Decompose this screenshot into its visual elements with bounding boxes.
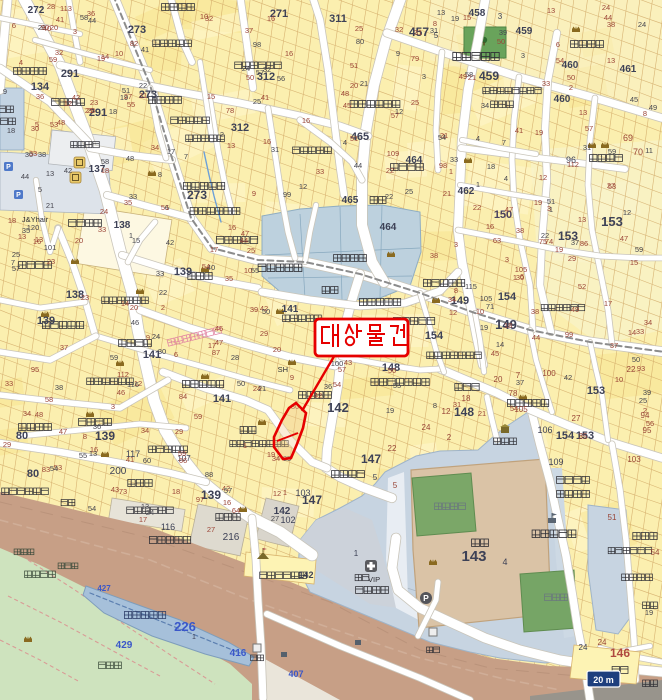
- svg-text:25: 25: [247, 246, 255, 255]
- svg-text:21: 21: [258, 384, 266, 393]
- svg-text:23: 23: [47, 257, 55, 266]
- svg-text:272: 272: [28, 5, 45, 16]
- svg-text:18: 18: [462, 394, 471, 403]
- svg-text:25: 25: [12, 250, 20, 259]
- svg-text:17: 17: [167, 147, 175, 156]
- svg-text:7: 7: [184, 152, 188, 161]
- svg-text:50: 50: [632, 355, 640, 364]
- svg-text:10: 10: [476, 307, 484, 316]
- svg-text:5: 5: [35, 120, 39, 129]
- svg-text:462: 462: [458, 186, 475, 197]
- svg-text:SH: SH: [278, 365, 288, 374]
- svg-text:24: 24: [152, 332, 160, 341]
- svg-text:50: 50: [497, 37, 505, 46]
- svg-text:19: 19: [451, 14, 459, 23]
- svg-text:1: 1: [549, 205, 553, 214]
- svg-text:1: 1: [449, 167, 453, 176]
- svg-text:41: 41: [261, 93, 269, 102]
- svg-text:116: 116: [161, 522, 175, 532]
- svg-text:103: 103: [295, 488, 310, 498]
- svg-text:98: 98: [253, 40, 261, 49]
- svg-text:3: 3: [73, 27, 77, 36]
- svg-text:37: 37: [60, 343, 68, 352]
- svg-text:95: 95: [31, 365, 39, 374]
- svg-text:12: 12: [449, 308, 457, 317]
- svg-text:22: 22: [627, 365, 636, 374]
- svg-text:15: 15: [463, 13, 471, 22]
- svg-text:36: 36: [324, 382, 332, 391]
- svg-text:50: 50: [237, 379, 245, 388]
- svg-text:19: 19: [386, 406, 394, 415]
- svg-text:8: 8: [83, 432, 87, 441]
- svg-text:60: 60: [143, 456, 151, 465]
- svg-text:22: 22: [388, 444, 397, 453]
- svg-text:115: 115: [465, 282, 477, 291]
- svg-text:4: 4: [504, 174, 508, 183]
- svg-text:2: 2: [220, 130, 224, 139]
- svg-text:41: 41: [515, 126, 523, 135]
- svg-text:109: 109: [387, 149, 400, 158]
- svg-text:18: 18: [504, 321, 512, 330]
- svg-text:90: 90: [41, 23, 49, 32]
- svg-text:34: 34: [481, 101, 489, 110]
- svg-text:460: 460: [562, 60, 579, 71]
- svg-text:154: 154: [556, 430, 575, 442]
- svg-text:59: 59: [608, 147, 616, 156]
- svg-text:13: 13: [547, 6, 555, 15]
- svg-text:47: 47: [215, 338, 223, 347]
- svg-text:153: 153: [601, 214, 623, 229]
- svg-text:1: 1: [354, 549, 359, 558]
- svg-text:461: 461: [620, 64, 637, 75]
- svg-text:226: 226: [174, 619, 196, 634]
- svg-text:2: 2: [161, 303, 165, 312]
- svg-text:87: 87: [212, 348, 220, 357]
- svg-text:22: 22: [473, 203, 481, 212]
- svg-text:20: 20: [75, 236, 83, 245]
- svg-text:56: 56: [646, 419, 654, 428]
- svg-text:56: 56: [277, 74, 285, 83]
- svg-text:24: 24: [146, 508, 154, 517]
- svg-text:64: 64: [232, 506, 240, 515]
- svg-text:54: 54: [510, 404, 518, 413]
- svg-text:48: 48: [57, 118, 65, 127]
- svg-text:5: 5: [373, 473, 378, 482]
- svg-text:273: 273: [187, 188, 207, 202]
- svg-text:12: 12: [273, 489, 281, 498]
- svg-text:36: 36: [36, 92, 44, 101]
- svg-text:34: 34: [151, 143, 159, 152]
- svg-text:39: 39: [499, 28, 507, 37]
- svg-text:139: 139: [37, 315, 55, 327]
- svg-text:51: 51: [350, 134, 358, 143]
- svg-text:459: 459: [516, 26, 533, 37]
- svg-text:34: 34: [448, 295, 456, 304]
- svg-text:37: 37: [245, 26, 253, 35]
- svg-text:33: 33: [542, 79, 550, 88]
- svg-text:19: 19: [534, 198, 542, 207]
- svg-text:22: 22: [385, 192, 393, 201]
- svg-text:142: 142: [298, 570, 313, 580]
- svg-text:22: 22: [159, 288, 167, 297]
- svg-text:49: 49: [571, 305, 579, 314]
- svg-text:37: 37: [516, 378, 524, 387]
- svg-text:47: 47: [241, 229, 249, 238]
- svg-text:33: 33: [450, 155, 458, 164]
- svg-text:31: 31: [139, 91, 147, 100]
- svg-text:19: 19: [480, 323, 488, 332]
- svg-text:139: 139: [95, 429, 115, 443]
- svg-text:25: 25: [411, 98, 419, 107]
- svg-text:16: 16: [285, 49, 293, 58]
- svg-text:63: 63: [493, 236, 501, 245]
- svg-text:141: 141: [282, 304, 299, 315]
- svg-text:20: 20: [494, 375, 503, 384]
- svg-text:13: 13: [46, 169, 54, 178]
- svg-text:18: 18: [172, 487, 180, 496]
- svg-text:18: 18: [487, 162, 495, 171]
- svg-text:55: 55: [393, 381, 401, 390]
- svg-text:39: 39: [250, 305, 258, 314]
- svg-text:13: 13: [89, 449, 97, 458]
- svg-text:2: 2: [447, 433, 452, 442]
- svg-text:19: 19: [535, 128, 543, 137]
- svg-text:44: 44: [532, 333, 540, 342]
- svg-text:12: 12: [539, 173, 547, 182]
- svg-text:460: 460: [554, 94, 571, 105]
- svg-text:51: 51: [608, 513, 617, 522]
- svg-text:33: 33: [129, 192, 137, 201]
- svg-text:71: 71: [486, 302, 494, 311]
- svg-text:113: 113: [60, 4, 72, 13]
- svg-text:46: 46: [215, 324, 223, 333]
- svg-text:141: 141: [213, 393, 231, 405]
- svg-text:37: 37: [610, 341, 618, 350]
- svg-text:153: 153: [587, 385, 605, 397]
- svg-text:1: 1: [513, 273, 517, 282]
- svg-text:21: 21: [46, 201, 54, 210]
- svg-text:139: 139: [174, 266, 192, 278]
- svg-text:20 m: 20 m: [593, 675, 614, 685]
- svg-text:154: 154: [498, 291, 517, 303]
- svg-text:86: 86: [580, 239, 588, 248]
- svg-text:12: 12: [623, 208, 631, 217]
- svg-text:54: 54: [651, 548, 660, 557]
- svg-text:41: 41: [56, 15, 64, 24]
- svg-text:54: 54: [333, 380, 341, 389]
- svg-text:24: 24: [422, 423, 431, 432]
- svg-text:36: 36: [93, 422, 101, 431]
- svg-text:88: 88: [205, 470, 213, 479]
- svg-text:465: 465: [342, 195, 359, 206]
- svg-text:8: 8: [433, 19, 437, 28]
- svg-text:3: 3: [454, 240, 458, 249]
- svg-text:P: P: [16, 192, 21, 199]
- svg-text:27: 27: [572, 414, 581, 423]
- svg-text:291: 291: [61, 68, 79, 80]
- svg-text:105: 105: [480, 294, 493, 303]
- svg-text:18: 18: [101, 166, 109, 175]
- svg-text:80: 80: [356, 37, 364, 46]
- svg-text:13: 13: [607, 56, 615, 65]
- svg-text:42: 42: [72, 93, 80, 102]
- svg-text:13: 13: [227, 141, 235, 150]
- svg-text:3: 3: [505, 255, 509, 264]
- svg-text:97: 97: [196, 495, 204, 504]
- svg-text:33: 33: [156, 269, 164, 278]
- svg-text:19: 19: [555, 245, 563, 254]
- svg-text:35: 35: [225, 274, 233, 283]
- svg-text:4: 4: [19, 58, 23, 67]
- svg-text:458: 458: [469, 8, 486, 19]
- svg-text:VIP: VIP: [368, 575, 380, 584]
- svg-text:50: 50: [567, 73, 575, 82]
- svg-text:33: 33: [98, 225, 106, 234]
- svg-text:58: 58: [101, 157, 109, 166]
- svg-text:53: 53: [608, 182, 616, 191]
- svg-text:52: 52: [578, 282, 586, 291]
- svg-text:18: 18: [7, 126, 15, 135]
- svg-text:112: 112: [117, 370, 129, 379]
- svg-text:34: 34: [141, 426, 149, 435]
- svg-text:20: 20: [273, 345, 281, 354]
- svg-text:57: 57: [391, 111, 399, 120]
- svg-text:32: 32: [263, 65, 271, 74]
- svg-text:416: 416: [230, 648, 247, 659]
- svg-text:109: 109: [548, 457, 563, 467]
- svg-text:5: 5: [38, 185, 42, 194]
- svg-text:154: 154: [425, 330, 444, 342]
- svg-text:10: 10: [615, 375, 623, 384]
- svg-text:42: 42: [564, 373, 572, 382]
- svg-text:29: 29: [3, 440, 11, 449]
- svg-text:66: 66: [179, 456, 187, 465]
- svg-text:48: 48: [126, 154, 134, 163]
- svg-text:55: 55: [127, 100, 135, 109]
- svg-text:6: 6: [174, 350, 178, 359]
- svg-text:106: 106: [537, 425, 552, 435]
- svg-text:24: 24: [579, 643, 588, 652]
- svg-text:58: 58: [45, 395, 53, 404]
- svg-text:9: 9: [396, 49, 400, 58]
- svg-text:44: 44: [88, 16, 96, 25]
- svg-text:24: 24: [602, 3, 610, 12]
- svg-text:54: 54: [88, 504, 96, 513]
- svg-text:42: 42: [166, 238, 174, 247]
- svg-text:2: 2: [569, 83, 573, 92]
- svg-text:9: 9: [146, 333, 150, 342]
- svg-text:31: 31: [453, 400, 461, 409]
- svg-text:8: 8: [643, 109, 647, 118]
- svg-text:33: 33: [636, 327, 644, 336]
- svg-text:6: 6: [520, 272, 524, 281]
- svg-text:48: 48: [35, 410, 43, 419]
- svg-text:12: 12: [299, 182, 307, 191]
- svg-text:102: 102: [280, 515, 295, 525]
- svg-text:9: 9: [252, 189, 256, 198]
- svg-text:146: 146: [610, 646, 630, 660]
- svg-text:15: 15: [207, 92, 215, 101]
- svg-text:33: 33: [5, 379, 13, 388]
- svg-text:45: 45: [630, 95, 638, 104]
- svg-text:57: 57: [12, 264, 20, 273]
- svg-text:73: 73: [119, 487, 127, 496]
- svg-text:24: 24: [242, 64, 250, 73]
- svg-text:13: 13: [579, 108, 587, 117]
- svg-text:46: 46: [117, 388, 125, 397]
- svg-text:18: 18: [109, 107, 117, 116]
- svg-text:99: 99: [565, 330, 573, 339]
- svg-text:17: 17: [210, 245, 218, 254]
- svg-text:47: 47: [620, 234, 628, 243]
- svg-text:78: 78: [509, 389, 518, 398]
- svg-text:22: 22: [386, 166, 394, 175]
- svg-text:7: 7: [502, 138, 506, 147]
- svg-text:21: 21: [360, 79, 368, 88]
- svg-text:69: 69: [623, 133, 633, 143]
- svg-text:99: 99: [283, 190, 291, 199]
- svg-text:6: 6: [12, 21, 16, 30]
- svg-text:20: 20: [350, 81, 358, 90]
- svg-text:49: 49: [649, 103, 657, 112]
- svg-text:41: 41: [126, 455, 134, 464]
- svg-text:407: 407: [288, 669, 303, 679]
- svg-text:29: 29: [260, 329, 268, 338]
- svg-text:216: 216: [223, 532, 240, 543]
- svg-text:19: 19: [645, 608, 653, 617]
- svg-text:429: 429: [116, 640, 133, 651]
- svg-text:54: 54: [202, 262, 210, 271]
- svg-text:45: 45: [343, 101, 351, 110]
- svg-text:14: 14: [496, 340, 504, 349]
- svg-text:38: 38: [531, 307, 539, 316]
- svg-text:80: 80: [16, 430, 28, 442]
- svg-text:38: 38: [55, 383, 63, 392]
- svg-text:18: 18: [8, 216, 16, 225]
- svg-text:P: P: [6, 164, 11, 171]
- svg-text:103: 103: [627, 455, 641, 464]
- svg-text:34: 34: [644, 318, 652, 327]
- svg-text:82: 82: [130, 39, 138, 48]
- svg-text:51: 51: [161, 203, 169, 212]
- svg-text:59: 59: [110, 353, 118, 362]
- svg-text:54: 54: [50, 464, 58, 473]
- svg-text:112: 112: [567, 160, 579, 169]
- svg-text:1: 1: [243, 441, 247, 450]
- svg-text:427: 427: [97, 584, 111, 593]
- svg-text:51: 51: [122, 86, 130, 95]
- svg-text:47: 47: [59, 427, 67, 436]
- svg-text:15: 15: [630, 258, 638, 267]
- svg-text:50: 50: [388, 366, 396, 375]
- svg-text:21: 21: [478, 409, 486, 418]
- svg-text:16: 16: [33, 237, 41, 246]
- svg-text:37: 37: [571, 238, 579, 247]
- svg-text:75: 75: [539, 237, 547, 246]
- svg-text:45: 45: [491, 349, 499, 358]
- svg-text:16: 16: [228, 223, 236, 232]
- svg-text:41: 41: [141, 45, 149, 54]
- svg-text:29: 29: [568, 254, 576, 263]
- svg-text:47: 47: [505, 205, 513, 214]
- svg-text:3: 3: [422, 72, 426, 81]
- svg-text:21: 21: [85, 106, 93, 115]
- svg-text:116: 116: [127, 380, 139, 389]
- svg-text:49: 49: [459, 72, 467, 81]
- svg-text:273: 273: [128, 24, 146, 36]
- svg-text:4: 4: [343, 138, 347, 147]
- svg-text:138: 138: [114, 220, 131, 231]
- svg-text:42: 42: [64, 166, 72, 175]
- svg-text:8: 8: [158, 170, 162, 179]
- svg-text:16: 16: [302, 116, 310, 125]
- svg-text:50: 50: [262, 307, 270, 316]
- svg-text:24: 24: [100, 207, 108, 216]
- svg-text:59: 59: [635, 245, 643, 254]
- svg-text:19: 19: [97, 54, 105, 63]
- svg-text:14: 14: [121, 299, 129, 308]
- svg-text:98: 98: [439, 161, 447, 170]
- svg-text:30: 30: [158, 347, 166, 356]
- svg-text:31: 31: [583, 143, 591, 152]
- svg-text:100: 100: [542, 369, 556, 378]
- svg-text:10: 10: [115, 49, 123, 58]
- svg-text:6: 6: [556, 40, 560, 49]
- svg-text:31: 31: [414, 28, 422, 37]
- svg-text:51: 51: [350, 61, 358, 70]
- svg-text:80: 80: [27, 468, 39, 480]
- svg-text:38: 38: [516, 226, 524, 235]
- svg-text:31: 31: [271, 145, 279, 154]
- svg-text:55: 55: [251, 266, 259, 275]
- svg-text:3: 3: [521, 51, 525, 60]
- svg-text:21: 21: [443, 189, 451, 198]
- svg-text:1: 1: [283, 488, 287, 497]
- svg-text:3: 3: [111, 402, 115, 411]
- svg-text:311: 311: [329, 13, 347, 25]
- svg-text:16: 16: [486, 222, 494, 231]
- svg-text:84: 84: [179, 392, 187, 401]
- svg-text:147: 147: [361, 452, 381, 466]
- svg-text:142: 142: [327, 400, 349, 415]
- svg-text:33: 33: [316, 167, 324, 176]
- svg-text:24: 24: [598, 638, 607, 647]
- svg-text:13: 13: [18, 232, 26, 241]
- svg-text:44: 44: [354, 161, 362, 170]
- svg-text:4: 4: [476, 134, 480, 143]
- svg-text:38: 38: [430, 251, 438, 260]
- svg-text:22: 22: [139, 81, 147, 90]
- svg-text:46: 46: [131, 318, 139, 327]
- svg-text:15: 15: [132, 236, 140, 245]
- svg-text:54: 54: [556, 56, 564, 65]
- svg-text:27: 27: [207, 525, 215, 534]
- svg-text:79: 79: [411, 54, 419, 63]
- svg-text:3: 3: [498, 12, 503, 21]
- svg-text:20: 20: [130, 303, 138, 312]
- svg-text:24: 24: [638, 20, 646, 29]
- svg-text:8: 8: [454, 286, 458, 295]
- svg-text:34: 34: [23, 409, 31, 418]
- svg-text:25: 25: [639, 396, 647, 405]
- svg-text:32: 32: [55, 48, 63, 57]
- svg-text:464: 464: [380, 222, 397, 233]
- svg-text:2: 2: [643, 406, 647, 415]
- svg-text:25: 25: [405, 187, 413, 196]
- svg-text:32: 32: [395, 25, 403, 34]
- svg-text:13: 13: [437, 8, 445, 17]
- svg-text:38: 38: [38, 150, 46, 159]
